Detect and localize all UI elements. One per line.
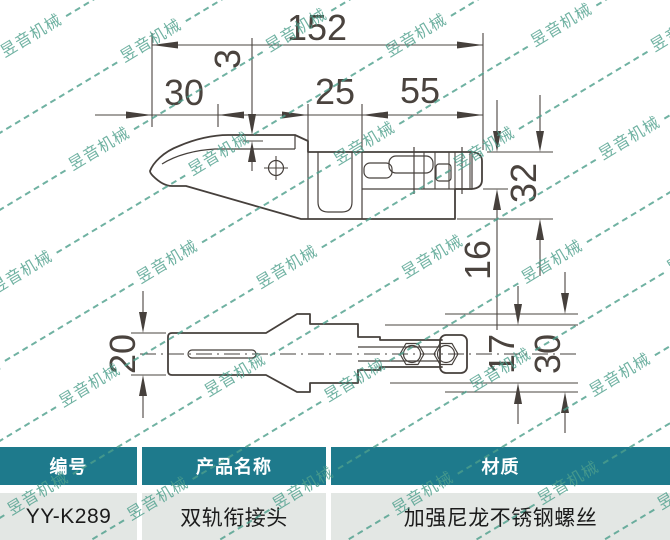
value-cell-product-name: 双轨衔接头: [142, 493, 326, 540]
dim-label-55: 55: [400, 70, 440, 111]
dim-label-30: 30: [164, 72, 204, 113]
spec-table: 编号 产品名称 材质 YY-K289 双轨衔接头 加强尼龙不锈钢螺丝: [0, 447, 670, 540]
dim-label-16: 16: [457, 240, 498, 280]
page: 152 30 25 55 3 16: [0, 0, 670, 540]
dim-label-3: 3: [207, 49, 248, 69]
header-cell-number: 编号: [0, 447, 137, 485]
dim-label-25: 25: [315, 71, 355, 112]
u-slot: [318, 152, 352, 212]
dim-label-30b: 30: [527, 334, 568, 374]
value-cell-material: 加强尼龙不锈钢螺丝: [331, 493, 670, 540]
top-view-dimensions: 152 30 25 55 3 16: [95, 7, 553, 330]
top-view-part: [150, 135, 482, 219]
table-value-row: YY-K289 双轨衔接头 加强尼龙不锈钢螺丝: [0, 493, 670, 540]
technical-drawing: 152 30 25 55 3 16: [0, 0, 670, 447]
header-cell-material: 材质: [331, 447, 670, 485]
header-cell-product-name: 产品名称: [142, 447, 326, 485]
value-cell-number: YY-K289: [0, 493, 137, 540]
dim-label-32: 32: [503, 163, 544, 203]
bottom-view-dimensions: 20 17 30: [102, 272, 578, 433]
hex-nut: [434, 344, 458, 365]
table-header-row: 编号 产品名称 材质: [0, 447, 670, 485]
part-outline-top-view: [150, 135, 482, 219]
dim-label-152: 152: [287, 7, 347, 48]
dim-label-20: 20: [102, 334, 143, 374]
dim-label-17: 17: [481, 334, 522, 374]
